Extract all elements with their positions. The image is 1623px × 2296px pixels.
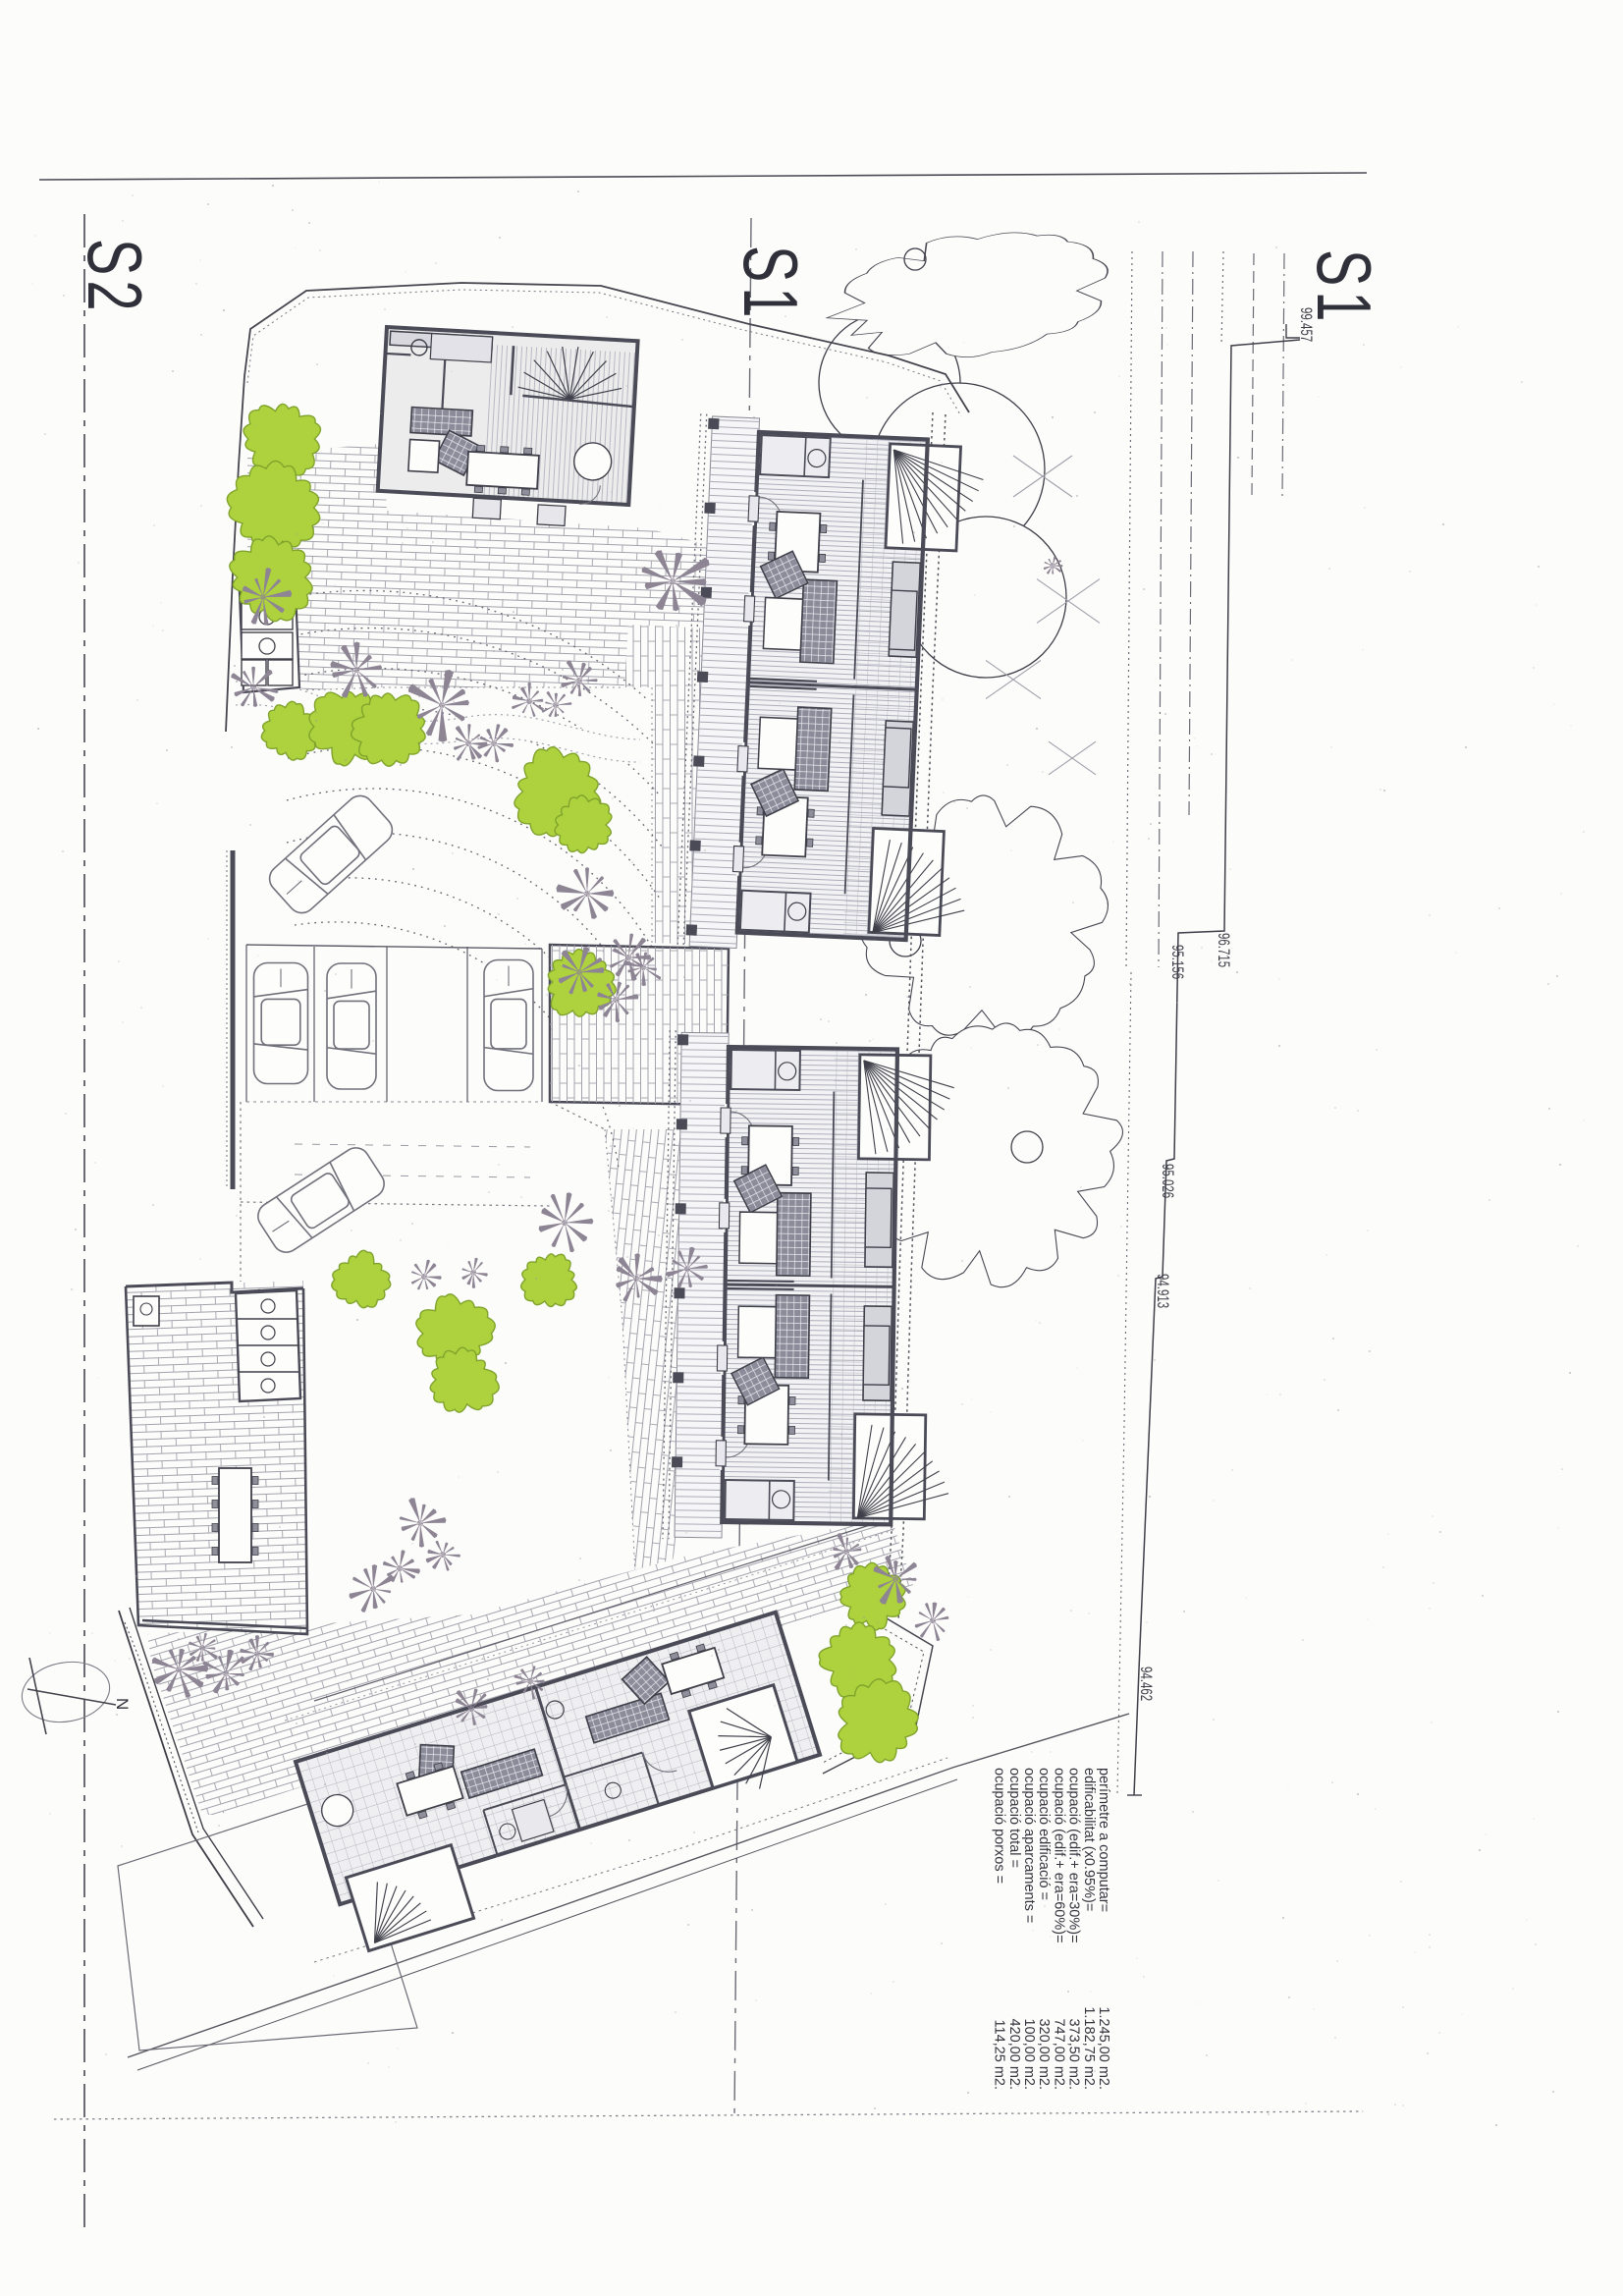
svg-text:S1: S1 [1301, 249, 1386, 326]
svg-text:95.026: 95.026 [1158, 1164, 1176, 1198]
svg-text:N: N [113, 1698, 132, 1710]
svg-text:ocupació total =: ocupació total = [1006, 1768, 1022, 1868]
svg-text:96.715: 96.715 [1214, 933, 1232, 967]
svg-text:420,00 m2.: 420,00 m2. [1006, 2018, 1022, 2090]
svg-text:1.245,00 m2.: 1.245,00 m2. [1096, 2006, 1111, 2090]
svg-text:ocupació aparcaments =: ocupació aparcaments = [1021, 1768, 1037, 1923]
svg-text:ocupació (edif.+ era=60%)=: ocupació (edif.+ era=60%)= [1051, 1768, 1066, 1943]
svg-text:S1: S1 [728, 246, 813, 322]
svg-text:95.156: 95.156 [1167, 945, 1186, 979]
svg-text:ocupació (edif.+ era=30%)=: ocupació (edif.+ era=30%)= [1066, 1768, 1082, 1943]
svg-text:94.913: 94.913 [1153, 1274, 1171, 1308]
svg-text:S2: S2 [72, 239, 157, 315]
svg-text:94.462: 94.462 [1136, 1667, 1155, 1701]
svg-text:114,25 m2.: 114,25 m2. [992, 2020, 1007, 2090]
svg-text:perímetre a computar=: perímetre a computar= [1096, 1768, 1111, 1912]
svg-text:ocupació porxos =: ocupació porxos = [992, 1768, 1007, 1884]
svg-text:373,50 m2.: 373,50 m2. [1066, 2018, 1082, 2090]
svg-text:320,00 m2.: 320,00 m2. [1036, 2018, 1052, 2090]
svg-text:100,00 m2.: 100,00 m2. [1021, 2018, 1037, 2090]
svg-text:edificabilitat (x0.95%)=: edificabilitat (x0.95%)= [1081, 1768, 1097, 1911]
svg-text:747,00 m2.: 747,00 m2. [1051, 2018, 1066, 2090]
svg-text:1.182,75 m2.: 1.182,75 m2. [1081, 2006, 1097, 2090]
svg-text:ocupació edificació =: ocupació edificació = [1036, 1768, 1052, 1900]
